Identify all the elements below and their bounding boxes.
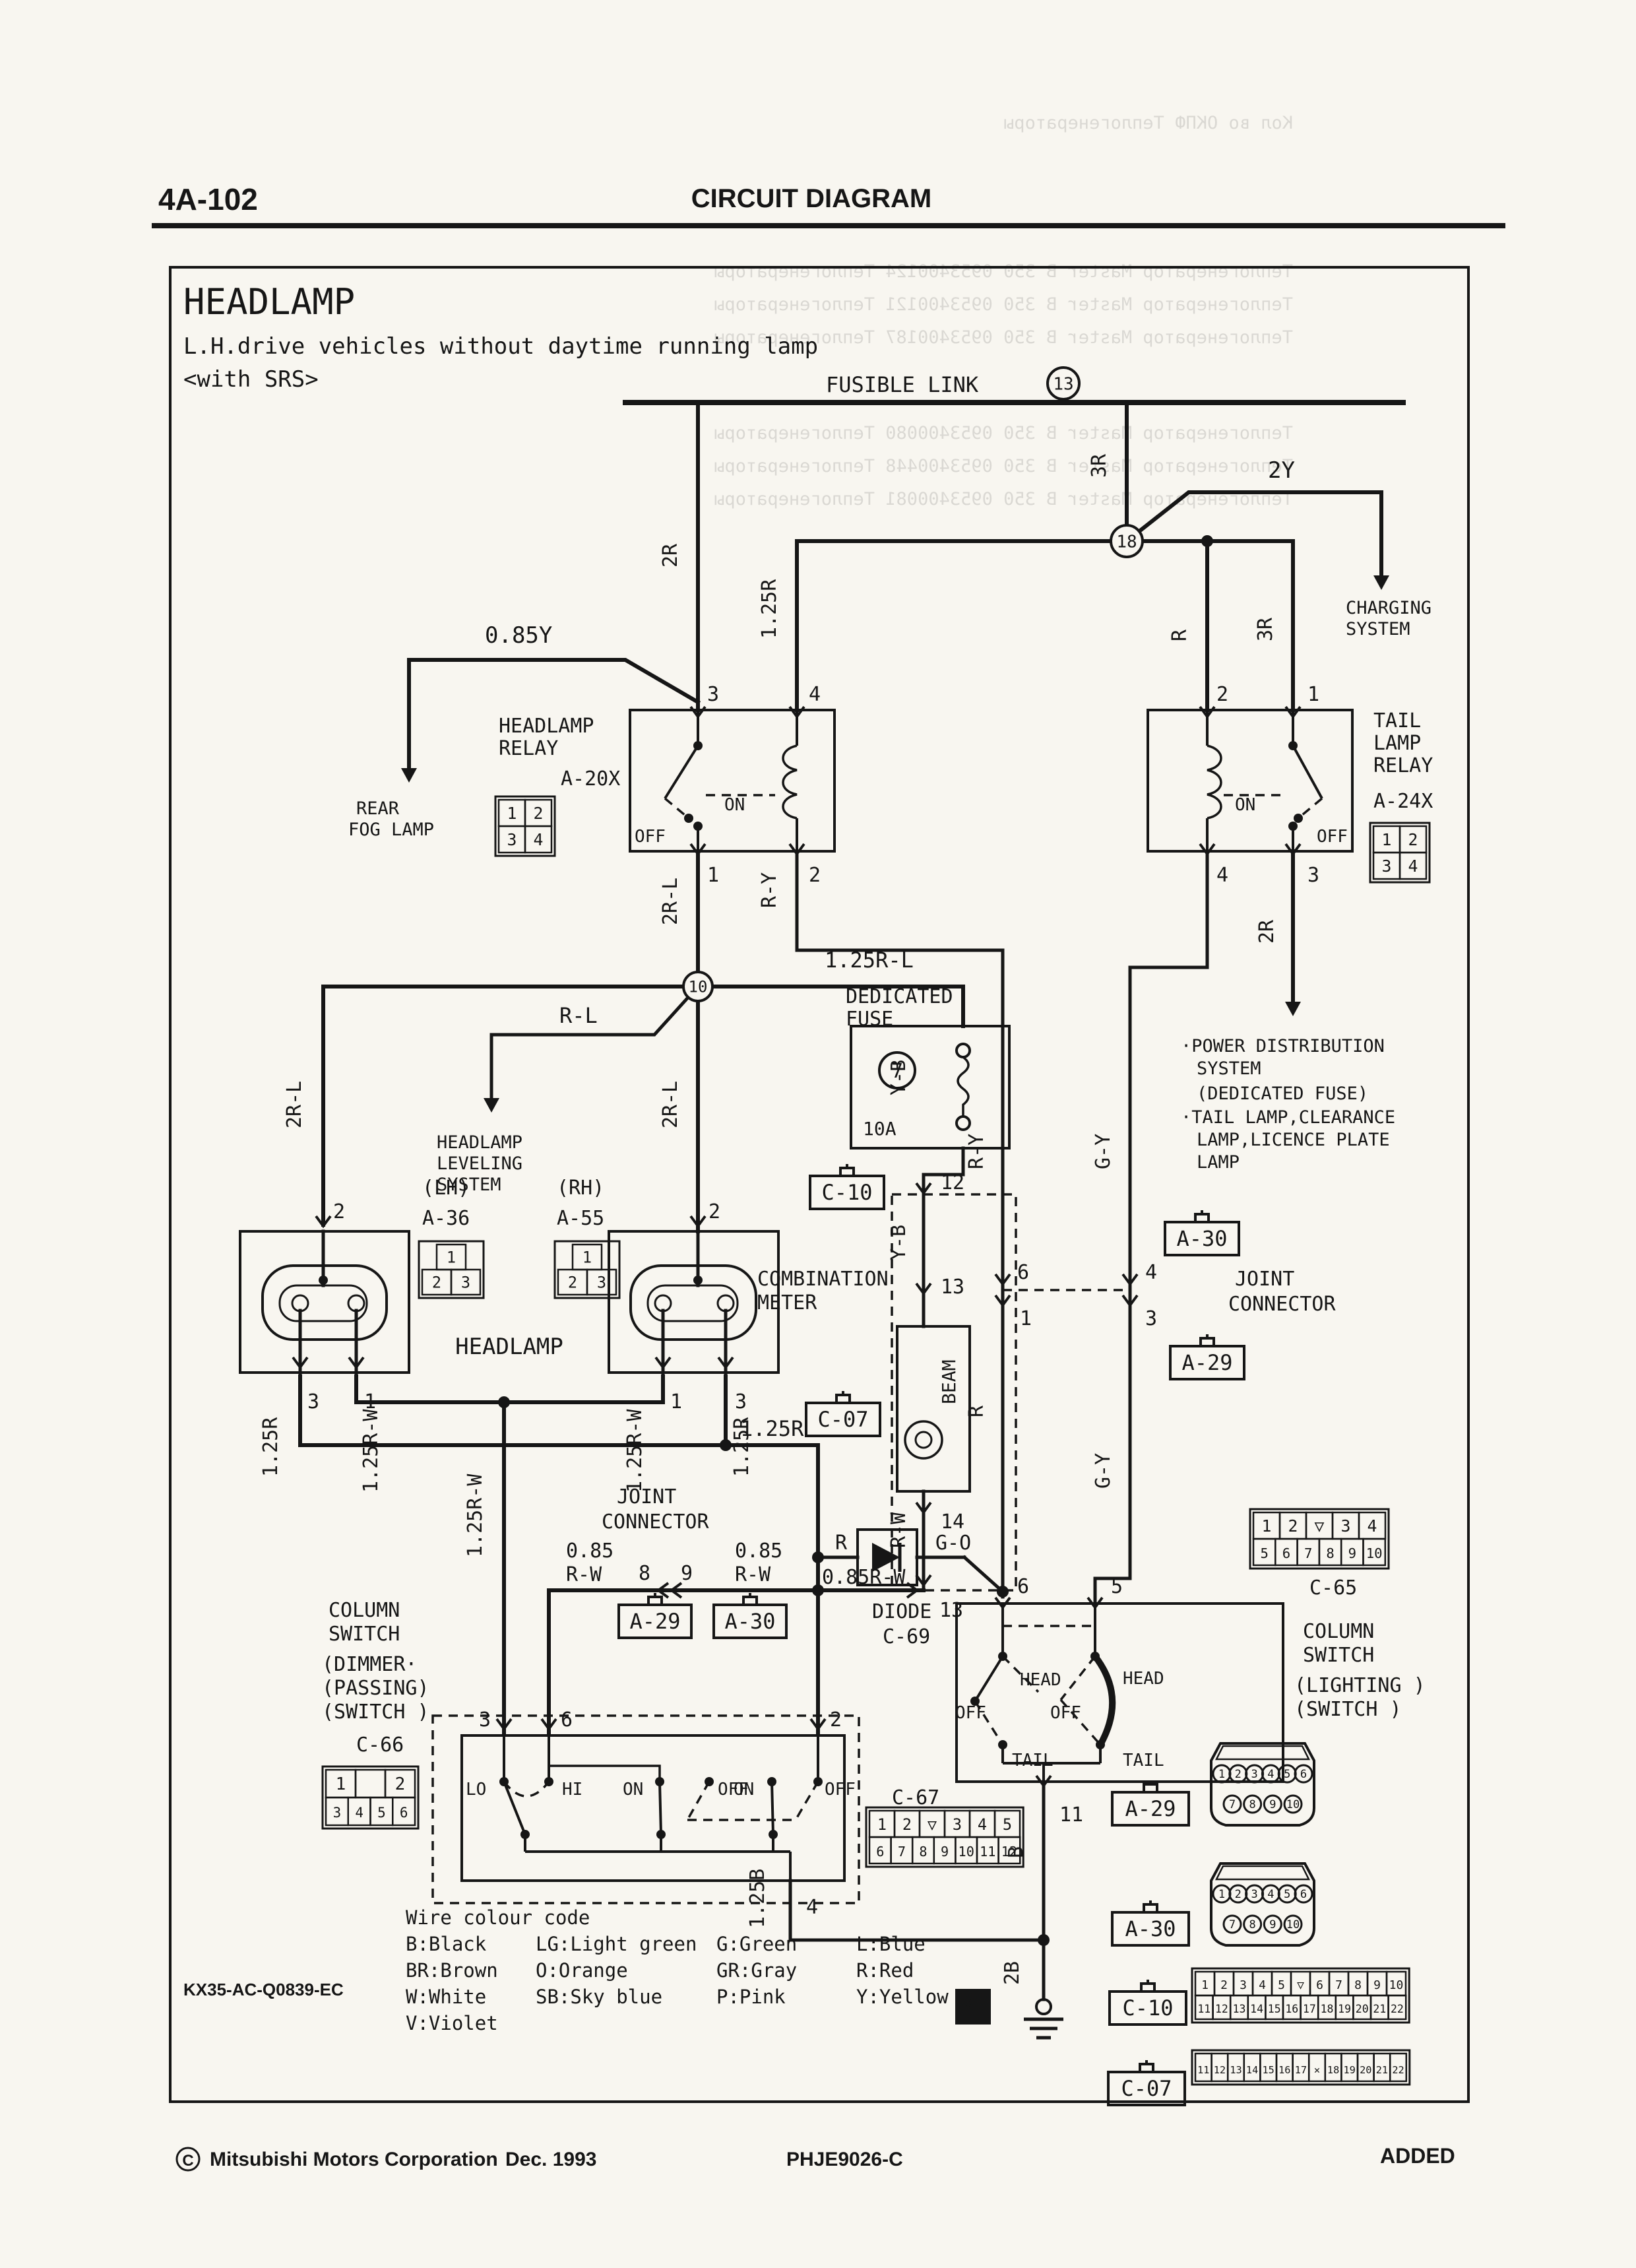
connector-grid-c66-pin-2: 2 [395,1774,406,1794]
wire-3r-right: 3R [1254,617,1277,641]
lighting-head-arm [1095,1656,1112,1745]
tag-c07-bottom-label: C-07 [1121,2076,1172,2101]
rh-bulb-terminal-2 [718,1295,734,1311]
connector-grid-a36: 123 [419,1241,484,1298]
wire-3r-top: 3R [1088,453,1111,478]
contact-dot-6 [499,1777,509,1786]
leveling-2: LEVELING [437,1153,522,1174]
lighting-head-l: HEAD [1020,1670,1061,1690]
tag-a30-right-label: A-30 [1176,1226,1227,1251]
tail-relay-2: LAMP [1373,732,1421,755]
wire-085y: 0.85Y [485,622,552,649]
connector-round-a30-pin-4: 4 [1267,1888,1274,1901]
connector-grid-c10-pin-15: 15 [1268,2003,1281,2015]
connector-tags: C-10C-07A-30A-29A-29A-30A-29A-30C-10C-07 [619,1164,1244,2105]
junction-dot-1 [498,1396,510,1408]
pin-rh-3: 3 [735,1390,747,1413]
column-switch-3: (DIMMER· [322,1653,418,1676]
connector-grid-c10-pin-10: 10 [1389,1978,1404,1992]
connector-grid-a55-pin-1: 1 [582,1248,592,1266]
tail-relay-1: TAIL [1373,709,1421,732]
connector-round-a30-key [1216,1866,1309,1879]
diode-r: R [835,1532,848,1555]
connector-round-a30-pin-7: 7 [1229,1918,1236,1931]
dimmer-lo: LO [466,1780,486,1799]
tag-a30-bottom: A-30 [1112,1900,1189,1945]
c65-label: C-65 [1309,1576,1357,1600]
wire-125b [790,1881,1044,1940]
fuse-element-icon [958,1057,968,1117]
connector-grid-c10-pin-6: 6 [1316,1978,1323,1992]
rh-bulb-terminal-1 [655,1295,671,1311]
connector-round-a30-pin-2: 2 [1235,1888,1242,1901]
tag-a30-bottom-label: A-30 [1125,1916,1176,1941]
pin-dimmer-4: 4 [806,1896,818,1919]
tag-a29-right: A-29 [1170,1334,1244,1379]
contact-dot-0 [693,741,703,750]
connector-grid-c65-pin-5: 5 [1260,1545,1268,1561]
connector-grid-c66-pin-4: 4 [355,1805,363,1821]
contact-dot-2 [1288,741,1298,750]
connector-grid-c10-pin-13: 13 [1233,2003,1246,2015]
connector-grid-c07-pin-12: 12 [1214,2064,1226,2076]
lh-label-2: A-36 [422,1207,470,1230]
power-dist-1: ·POWER DISTRIBUTION [1181,1036,1385,1056]
beam-label: BEAM [938,1360,960,1404]
connector-grid-a24x: 1234 [1370,823,1430,882]
contact-dot-19 [1096,1740,1105,1749]
column-switch-5: (SWITCH ) [322,1701,429,1724]
connector-round-a29-pin-3: 3 [1251,1768,1257,1781]
beam-lamp-inner-icon [916,1432,931,1448]
rear-fog-lamp-2: FOG LAMP [348,820,434,840]
diode-label-2: C-69 [883,1625,930,1648]
connector-grid-c65-pin-10: 10 [1366,1545,1383,1561]
dimmer-pin-stubs [504,1735,818,1782]
pin-a20x-4: 4 [809,683,821,706]
tag-c10-meter-nub [840,1164,854,1176]
wire-125rw-rh: 1.25R-W [623,1409,646,1493]
connector-grid-c66-pin-3: 3 [333,1805,342,1821]
tag-c07-meter-nub [836,1391,850,1403]
tag-a29-joint-nub [648,1593,662,1605]
wire-125rw-drop: 1.25R-W [464,1474,487,1557]
connector-grid-c10: 12345▽678910111213141516171819202122 [1192,1968,1409,2023]
bleed-row-0: Кол во ОКПФ Теплогенераторы [1003,113,1293,133]
connector-grid-a36-pin-2: 2 [432,1273,441,1291]
junction-10: 10 [689,978,708,996]
lh-bulb-terminal-2 [348,1295,364,1311]
pin-a20x-3: 3 [707,683,719,706]
connector-grid-a55-pin-2: 2 [568,1273,577,1291]
contact-dot-14 [769,1830,778,1839]
pin-meter-13b: 13 [939,1599,963,1622]
connector-grid-c10-pin-7: 7 [1335,1978,1342,1992]
column-lighting-3: (LIGHTING ) [1294,1674,1426,1697]
pin-joint-8: 8 [639,1562,650,1585]
wcc-title: Wire colour code [406,1906,590,1929]
tag-a29-joint: A-29 [619,1593,691,1638]
dimmer-on-2: ON [734,1780,754,1799]
wire-2b: 2B [1001,1961,1024,1985]
connector-round-a29-pin-9: 9 [1269,1798,1276,1811]
charging-system-2: SYSTEM [1346,619,1410,639]
connector-grid-c67-pin-9: 9 [941,1844,949,1860]
lighting-pin-stubs [1003,1604,1095,1656]
connector-round-a29-pin-4: 4 [1267,1768,1274,1781]
pin-a24x-1: 1 [1307,683,1319,706]
connector-grid-c67-pin-3: 3 [953,1815,962,1834]
joint-085-1b: R-W [566,1563,602,1586]
column-lighting-4: (SWITCH ) [1294,1698,1402,1721]
tag-c10-bottom: C-10 [1110,1980,1186,2025]
wcc-y: Y:Yellow [856,1986,949,2008]
ground-icon [1024,2019,1063,2038]
power-dist-5: LAMP,LICENCE PLATE [1197,1130,1390,1150]
connector-round-a29-pin-5: 5 [1284,1768,1290,1781]
connector-grid-c66-pin-5: 5 [377,1805,386,1821]
tag-a30-right-nub [1195,1210,1209,1222]
contact-dot-16 [1090,1652,1100,1661]
pin-joint-9: 9 [681,1562,693,1585]
connector-grid-c07-pin-21: 21 [1376,2064,1388,2076]
connector-grid-c07-pin-14: 14 [1246,2064,1258,2076]
connector-grid-c07-pin-15: 15 [1263,2064,1274,2076]
lighting-left-arm [975,1656,1003,1701]
pin-dimmer-3: 3 [479,1708,491,1732]
connector-grid-a36-pin-3: 3 [461,1273,470,1291]
lighting-off-r: OFF [1050,1703,1081,1723]
beam-lamp-icon [905,1421,942,1458]
connector-round-a29-pin-1: 1 [1218,1768,1225,1781]
connector-round-a30-pin-3: 3 [1251,1888,1257,1901]
footer-code: PHJE9026-C [786,2149,903,2170]
pin-lh-3: 3 [307,1390,319,1413]
connector-round-a29: 12345678910 [1211,1743,1314,1825]
lh-label-1: (LH) [422,1177,470,1200]
c67-label: C-67 [892,1786,939,1809]
rh-label-2: A-55 [557,1207,604,1230]
connector-grid-a20x: 1234 [495,796,555,856]
connector-grid-c65-pin-8: 8 [1326,1545,1334,1561]
page-code: 4A-102 [158,182,258,216]
round-connectors: 1234567891012345678910 [1211,1743,1314,1945]
wire-125r-coil: 1.25R [758,579,781,639]
connector-grid-c10-pin-9: 9 [1373,1978,1381,1992]
column-lighting-1: COLUMN [1303,1620,1374,1643]
pin-pass-3: 3 [1145,1307,1157,1330]
footer-added: ADDED [1380,2144,1455,2168]
page-bleed-through: Кол во ОКПФ ТеплогенераторыТеплогенерато… [714,113,1293,509]
tag-a30-joint-label: A-30 [724,1609,775,1634]
footer-copyright: C [182,2152,193,2170]
headlamp-relay-1: HEADLAMP [499,715,594,738]
wcc-br: BR:Brown [406,1959,498,1982]
wcc-gr: GR:Gray [716,1959,797,1982]
pin-lh-2: 2 [333,1200,345,1223]
connector-grid-c65-pin-▽: ▽ [1315,1516,1325,1536]
wire-r-mid: R [965,1405,988,1417]
title-subtitle: L.H.drive vehicles without daytime runni… [183,333,818,360]
headlamp-relay-2: RELAY [499,737,558,760]
connector-grid-c66-cell-0-1 [356,1770,385,1798]
pin-lighting-11: 11 [1059,1803,1083,1827]
connector-grid-c66: 123456 [323,1766,418,1829]
wcc-sb: SB:Sky blue [536,1986,662,2008]
connector-round-a30-pin-8: 8 [1249,1918,1256,1931]
a24x-on: ON [1235,795,1255,815]
junction-18: 18 [1116,532,1137,552]
pin-a20x-1: 1 [707,864,719,887]
contact-dot-9 [705,1777,714,1786]
connector-grid-c66-pin-6: 6 [400,1805,408,1821]
diode-go: G-O [935,1532,971,1555]
pin-pass-1: 1 [1020,1307,1032,1330]
wire-rw-1: R-W [887,1512,910,1548]
connector-round-a30-pin-9: 9 [1269,1918,1276,1931]
connector-grid-c10-pin-4: 4 [1259,1978,1266,1992]
connector-grid-c07-pin-13: 13 [1230,2064,1242,2076]
connector-grid-a20x-pin-1: 1 [507,804,517,823]
rh-label-1: (RH) [557,1177,604,1200]
joint-right-1: JOINT [1235,1268,1294,1291]
connector-grid-c07-pin-22: 22 [1392,2064,1404,2076]
a24x-off-arm [1298,798,1322,818]
tag-c07-bottom-nub [1140,2060,1153,2072]
headlamp-relay-code: A-20X [561,767,620,791]
wire-b: B [1005,1846,1028,1858]
contact-dot-12 [520,1830,530,1839]
power-dist-2: SYSTEM [1197,1058,1261,1079]
wire-rl: R-L [559,1003,598,1028]
wire-2y: 2Y [1268,457,1295,484]
connector-grid-c67-pin-▽: ▽ [928,1815,937,1834]
wcc-o: O:Orange [536,1959,628,1982]
contact-dot-1 [693,822,703,831]
header-rule [152,223,1505,228]
fusible-link-number: 13 [1053,374,1073,394]
tag-c10-bottom-label: C-10 [1122,1995,1173,2021]
connector-grid-c10-pin-5: 5 [1278,1978,1285,1992]
connector-grid-c10-pin-18: 18 [1321,2003,1334,2015]
terminal-arrow-1 [484,1098,499,1113]
connector-grid-a36-pin-1: 1 [447,1248,456,1266]
contact-dot-5 [1294,814,1303,823]
connector-grid-c07-pin-17: 17 [1295,2064,1307,2076]
wcc-p: P:Pink [716,1986,786,2008]
wire-125rw-lh: 1.25R-W [360,1409,383,1493]
wcc-lg: LG:Light green [536,1933,697,1955]
wire-gy-1: G-Y [1092,1134,1115,1169]
dimmer-hi: HI [562,1780,582,1799]
wcc-w: W:White [406,1986,486,2008]
charging-system-1: CHARGING [1346,598,1431,618]
tag-a29-right-label: A-29 [1181,1350,1232,1375]
bleed-row-2: Теплогенератор Master B 350 0953400121 Т… [714,294,1293,315]
column-switch-2: SWITCH [329,1623,400,1646]
contact-dot-7 [544,1777,553,1786]
a20x-coil [783,746,797,818]
title-srs: <with SRS> [183,366,319,393]
connector-grid-c07-pin-11: 11 [1197,2064,1209,2076]
pin-pass-6: 6 [1017,1261,1029,1284]
title-headlamp: HEADLAMP [183,281,355,323]
a20x-on: ON [724,795,745,815]
connector-grid-c67: 12▽3456789101112 [866,1807,1023,1867]
tag-a30-joint: A-30 [714,1593,786,1638]
wcc-b: B:Black [406,1933,487,1955]
connector-grid-c67-pin-5: 5 [1003,1815,1012,1834]
connector-grid-c10-pin-14: 14 [1250,2003,1263,2015]
tag-c07-meter: C-07 [806,1391,880,1436]
connector-grid-a55-pin-3: 3 [597,1273,606,1291]
pin-a24x-2: 2 [1216,683,1228,706]
contact-dot-20 [319,1276,328,1285]
scanned-page: Кол во ОКПФ ТеплогенераторыТеплогенерато… [0,0,1636,2268]
a20x-switch-arm [665,710,698,851]
rear-fog-lamp-1: REAR [356,798,400,819]
connector-round-a29-pin-10: 10 [1286,1798,1300,1811]
pin-lighting-5: 5 [1111,1575,1123,1598]
pin-lighting-6: 6 [1017,1575,1029,1598]
pin-rh-2: 2 [708,1200,720,1223]
wire-yb-2: Y-B [887,1225,910,1260]
connector-round-a30-pin-1: 1 [1218,1888,1225,1901]
a24x-coil [1207,746,1221,818]
terminal-arrow-2 [1373,575,1389,590]
wire-125r-bottom: 1.25R [740,1416,804,1441]
connector-round-a29-pin-8: 8 [1249,1798,1256,1811]
joint-left-2: CONNECTOR [602,1510,709,1534]
footer-company: Mitsubishi Motors Corporation [210,2149,498,2170]
contact-dot-13 [656,1830,666,1839]
wire-2rl-left [323,987,698,1225]
wcc-l: L:Blue [856,1933,926,1955]
connector-grid-c66-pin-1: 1 [336,1774,346,1794]
tag-a30-right: A-30 [1165,1210,1239,1255]
pin-a24x-4: 4 [1216,864,1228,887]
wire-2r-top: 2R [659,543,682,567]
wire-085rw: 0.85R-W [822,1566,906,1589]
connector-grid-c10-pin-20: 20 [1356,2003,1369,2015]
connector-grid-c67-pin-2: 2 [902,1815,912,1834]
connector-grid-c67-pin-6: 6 [876,1844,884,1860]
connector-round-a30-pin-6: 6 [1300,1888,1307,1901]
column-switch-1: COLUMN [329,1599,400,1622]
pin-rh-1: 1 [670,1390,682,1413]
dedicated-fuse-1: DEDICATED [846,985,953,1008]
dimmer-switch-outline [433,1716,859,1903]
wire-2r-tail: 2R [1255,919,1278,944]
wire-ry-1: R-Y [758,872,781,908]
connector-grid-c65-pin-9: 9 [1348,1545,1356,1561]
bleed-row-4: Теплогенератор Master B 350 0953400080 Т… [714,423,1293,443]
connector-grid-c67-pin-4: 4 [978,1815,987,1834]
connector-grid-c10-pin-19: 19 [1338,2003,1351,2015]
connector-grid-c65-pin-3: 3 [1341,1516,1351,1536]
pin-meter-12: 12 [941,1171,964,1194]
contact-dot-10 [767,1777,776,1786]
wire-gy-2: G-Y [1092,1453,1115,1489]
connector-grid-c10-pin-3: 3 [1240,1978,1247,1992]
connector-grid-c07-pin-20: 20 [1360,2064,1371,2076]
headlamp-section: HEADLAMP [455,1334,563,1360]
connector-grid-a20x-pin-4: 4 [534,830,544,849]
connector-grid-c65-pin-2: 2 [1288,1516,1298,1536]
connector-grid-a20x-pin-3: 3 [507,830,517,849]
connector-grid-c10-pin-11: 11 [1197,2003,1211,2015]
tail-relay-code: A-24X [1373,790,1433,813]
circuit-diagram: Кол во ОКПФ ТеплогенераторыТеплогенерато… [0,0,1636,2268]
contact-dot-8 [655,1777,664,1786]
tag-c10-meter: C-10 [810,1164,884,1209]
pin-meter-13a: 13 [941,1276,964,1299]
wire-2rl-1: 2R-L [659,878,682,925]
junction-dot-6 [1038,1934,1050,1946]
pin-meter-14: 14 [941,1510,964,1534]
tag-a29-right-nub [1201,1334,1214,1346]
contact-dot-18 [998,1740,1007,1749]
contact-dot-11 [813,1777,823,1786]
doc-code: KX35-AC-Q0839-EC [183,1980,344,1999]
tail-relay-3: RELAY [1373,754,1433,777]
fuse-terminal-bottom [957,1117,970,1130]
connector-round-a29-pin-7: 7 [1229,1798,1236,1811]
headlamp-rh-box [609,1231,778,1373]
pin-dimmer-2: 2 [830,1708,842,1732]
connector-grid-c10-pin-17: 17 [1303,2003,1316,2015]
connector-grid-c65: 12▽345678910 [1250,1509,1389,1569]
lighting-right-links [1061,1656,1100,1745]
fusible-link-label: FUSIBLE LINK [826,372,979,397]
wire-ry-2: R-Y [965,1134,988,1169]
connector-grid-c67-pin-10: 10 [959,1844,974,1860]
wcc-r: R:Red [856,1959,914,1982]
connector-grid-c07-pin-18: 18 [1327,2064,1339,2076]
ground-number: 4 [966,1991,980,2019]
connector-grid-c07: 11121314151617✕1819202122 [1192,2050,1410,2085]
wcc-g: G:Green [716,1933,797,1955]
wire-yb-1: Y-B [887,1060,910,1095]
power-dist-4: ·TAIL LAMP,CLEARANCE [1181,1107,1395,1128]
diode-label-1: DIODE [872,1600,931,1623]
connector-grid-c10-pin-▽: ▽ [1297,1978,1304,1992]
connector-grid-c65-pin-6: 6 [1282,1545,1290,1561]
a20x-off: OFF [635,827,666,847]
joint-085-2b: R-W [735,1563,771,1586]
connector-round-a29-key [1216,1746,1309,1759]
lighting-head-r: HEAD [1123,1669,1164,1689]
bleed-row-5: Теплогенератор Master B 350 0953400448 Т… [714,456,1293,476]
lighting-tail-r: TAIL [1123,1751,1164,1770]
connector-grid-c67-pin-7: 7 [898,1844,906,1860]
a24x-off: OFF [1317,827,1348,847]
connector-grid-c67-pin-1: 1 [877,1815,887,1834]
lighting-tail-l: TAIL [1012,1751,1054,1770]
connector-grid-c10-pin-16: 16 [1285,2003,1298,2015]
connector-grid-c07-pin-19: 19 [1344,2064,1356,2076]
tag-a29-joint-label: A-29 [629,1609,680,1634]
connector-grid-a24x-pin-3: 3 [1382,857,1392,876]
connector-grid-a24x-pin-1: 1 [1382,830,1392,849]
dedicated-fuse-2: FUSE [846,1008,893,1031]
joint-left-1: JOINT [617,1485,676,1508]
lh-bulb-terminal-1 [292,1295,308,1311]
connector-grid-a20x-pin-2: 2 [534,804,544,823]
connector-round-a29-pin-2: 2 [1235,1768,1242,1781]
pin-a20x-2: 2 [809,864,821,887]
tag-a29-bottom: A-29 [1112,1780,1189,1825]
